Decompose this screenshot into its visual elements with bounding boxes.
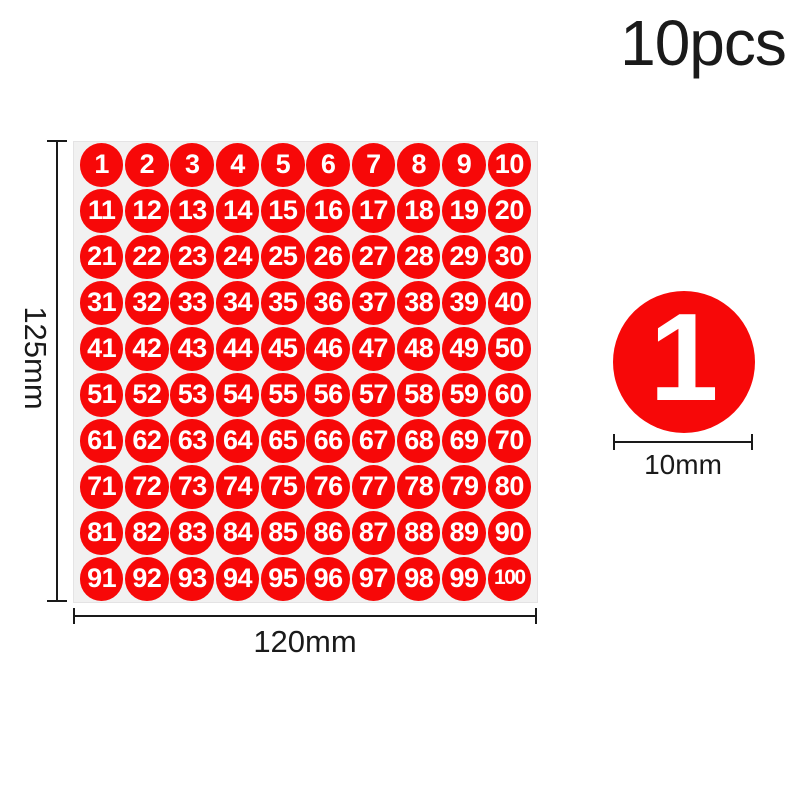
sticker-63: 63 [170,419,214,463]
sticker-51: 51 [80,373,124,417]
height-dimension-line [56,140,58,602]
sticker-80: 80 [488,465,532,509]
sticker-45: 45 [261,327,305,371]
sticker-7: 7 [352,143,396,187]
sticker-93: 93 [170,557,214,601]
sticker-53: 53 [170,373,214,417]
sticker-40: 40 [488,281,532,325]
sticker-28: 28 [397,235,441,279]
sticker-2: 2 [125,143,169,187]
sticker-6: 6 [306,143,350,187]
sticker-1: 1 [80,143,124,187]
sticker-3: 3 [170,143,214,187]
sticker-23: 23 [170,235,214,279]
sticker-26: 26 [306,235,350,279]
sticker-12: 12 [125,189,169,233]
sticker-15: 15 [261,189,305,233]
sample-diameter-line [613,441,753,443]
sticker-48: 48 [397,327,441,371]
sticker-87: 87 [352,511,396,555]
sticker-50: 50 [488,327,532,371]
sticker-4: 4 [216,143,260,187]
sticker-52: 52 [125,373,169,417]
sticker-76: 76 [306,465,350,509]
sticker-16: 16 [306,189,350,233]
sticker-92: 92 [125,557,169,601]
sticker-18: 18 [397,189,441,233]
sticker-31: 31 [80,281,124,325]
sticker-9: 9 [442,143,486,187]
sticker-88: 88 [397,511,441,555]
sticker-89: 89 [442,511,486,555]
sticker-46: 46 [306,327,350,371]
sticker-83: 83 [170,511,214,555]
sticker-58: 58 [397,373,441,417]
sticker-41: 41 [80,327,124,371]
sticker-68: 68 [397,419,441,463]
sticker-29: 29 [442,235,486,279]
sticker-11: 11 [80,189,124,233]
sticker-47: 47 [352,327,396,371]
sticker-10: 10 [488,143,532,187]
quantity-label: 10pcs [606,6,800,80]
sticker-8: 8 [397,143,441,187]
sample-sticker-number: 1 [650,296,719,428]
sticker-43: 43 [170,327,214,371]
sticker-25: 25 [261,235,305,279]
sticker-20: 20 [488,189,532,233]
sticker-62: 62 [125,419,169,463]
sticker-13: 13 [170,189,214,233]
sticker-86: 86 [306,511,350,555]
sticker-73: 73 [170,465,214,509]
sample-sticker: 1 [613,291,755,433]
sticker-55: 55 [261,373,305,417]
sticker-35: 35 [261,281,305,325]
sticker-21: 21 [80,235,124,279]
sticker-37: 37 [352,281,396,325]
sticker-60: 60 [488,373,532,417]
sticker-56: 56 [306,373,350,417]
sticker-79: 79 [442,465,486,509]
sticker-39: 39 [442,281,486,325]
sticker-96: 96 [306,557,350,601]
sticker-44: 44 [216,327,260,371]
sticker-36: 36 [306,281,350,325]
sticker-27: 27 [352,235,396,279]
sticker-24: 24 [216,235,260,279]
sticker-22: 22 [125,235,169,279]
sticker-71: 71 [80,465,124,509]
sticker-32: 32 [125,281,169,325]
sticker-85: 85 [261,511,305,555]
sticker-78: 78 [397,465,441,509]
sticker-54: 54 [216,373,260,417]
sticker-98: 98 [397,557,441,601]
sticker-66: 66 [306,419,350,463]
height-dimension-label: 125mm [17,258,53,458]
sticker-97: 97 [352,557,396,601]
sticker-67: 67 [352,419,396,463]
width-dimension-label: 120mm [73,624,537,660]
sticker-91: 91 [80,557,124,601]
sticker-59: 59 [442,373,486,417]
sticker-33: 33 [170,281,214,325]
sticker-100: 100 [488,557,532,601]
sticker-70: 70 [488,419,532,463]
sample-diameter-label: 10mm [613,449,753,481]
sticker-90: 90 [488,511,532,555]
sticker-42: 42 [125,327,169,371]
sticker-64: 64 [216,419,260,463]
sticker-17: 17 [352,189,396,233]
sticker-69: 69 [442,419,486,463]
sticker-61: 61 [80,419,124,463]
sticker-14: 14 [216,189,260,233]
sticker-95: 95 [261,557,305,601]
sticker-38: 38 [397,281,441,325]
sticker-34: 34 [216,281,260,325]
sticker-19: 19 [442,189,486,233]
sticker-49: 49 [442,327,486,371]
sticker-84: 84 [216,511,260,555]
sticker-65: 65 [261,419,305,463]
sticker-72: 72 [125,465,169,509]
sticker-81: 81 [80,511,124,555]
product-image-canvas: 10pcs 125mm 1234567891011121314151617181… [0,0,800,800]
width-dimension-line [73,615,537,617]
sticker-99: 99 [442,557,486,601]
sticker-75: 75 [261,465,305,509]
sticker-sheet: 1234567891011121314151617181920212223242… [73,141,538,603]
sticker-77: 77 [352,465,396,509]
sticker-5: 5 [261,143,305,187]
sticker-30: 30 [488,235,532,279]
sticker-57: 57 [352,373,396,417]
sticker-74: 74 [216,465,260,509]
sticker-94: 94 [216,557,260,601]
sticker-82: 82 [125,511,169,555]
